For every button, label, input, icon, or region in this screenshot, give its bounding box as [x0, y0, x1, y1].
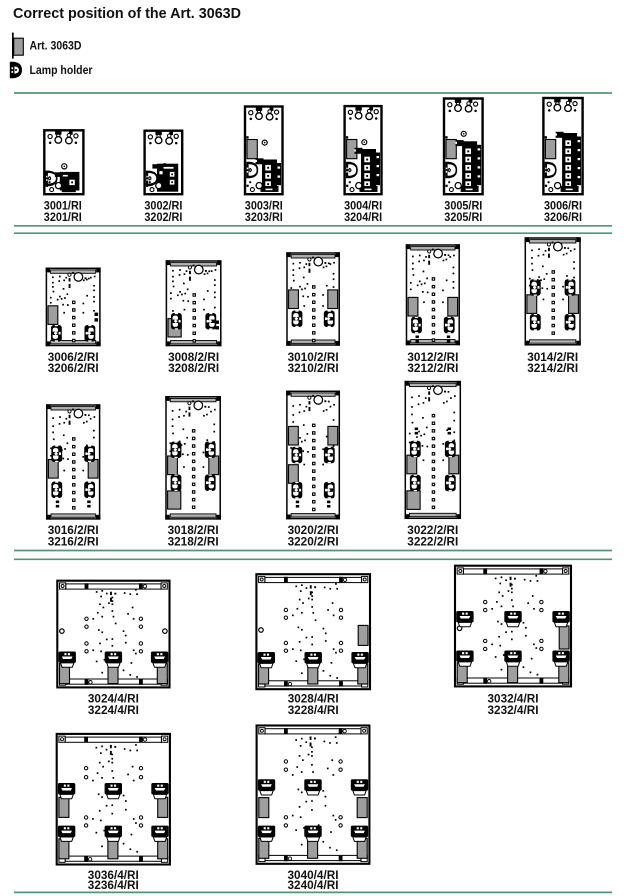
svg-text:3205/RI: 3205/RI	[444, 210, 482, 224]
svg-text:3202/RI: 3202/RI	[144, 210, 182, 224]
svg-text:3236/4/RI: 3236/4/RI	[88, 878, 139, 892]
svg-text:3210/2/RI: 3210/2/RI	[288, 361, 339, 375]
svg-text:3206/2/RI: 3206/2/RI	[48, 361, 99, 375]
svg-text:Correct position of the Art. 3: Correct position of the Art. 3063D	[13, 5, 241, 22]
svg-text:3214/2/RI: 3214/2/RI	[527, 361, 578, 375]
svg-text:Art. 3063D: Art. 3063D	[30, 41, 82, 53]
svg-text:3212/2/RI: 3212/2/RI	[407, 361, 458, 375]
svg-text:3201/RI: 3201/RI	[44, 210, 82, 224]
svg-text:3218/2/RI: 3218/2/RI	[168, 535, 219, 549]
svg-text:3240/4/RI: 3240/4/RI	[288, 878, 339, 892]
svg-text:3220/2/RI: 3220/2/RI	[288, 535, 339, 549]
svg-text:3206/RI: 3206/RI	[544, 210, 582, 224]
svg-text:3222/2/RI: 3222/2/RI	[407, 535, 458, 549]
svg-text:3228/4/RI: 3228/4/RI	[288, 703, 339, 717]
svg-text:3204/RI: 3204/RI	[344, 210, 382, 224]
svg-text:3203/RI: 3203/RI	[245, 210, 283, 224]
svg-text:3208/2/RI: 3208/2/RI	[168, 361, 219, 375]
svg-text:3216/2/RI: 3216/2/RI	[48, 535, 99, 549]
svg-text:3224/4/RI: 3224/4/RI	[88, 703, 139, 717]
svg-text:3232/4/RI: 3232/4/RI	[488, 703, 539, 717]
svg-text:Lamp holder: Lamp holder	[30, 65, 93, 77]
